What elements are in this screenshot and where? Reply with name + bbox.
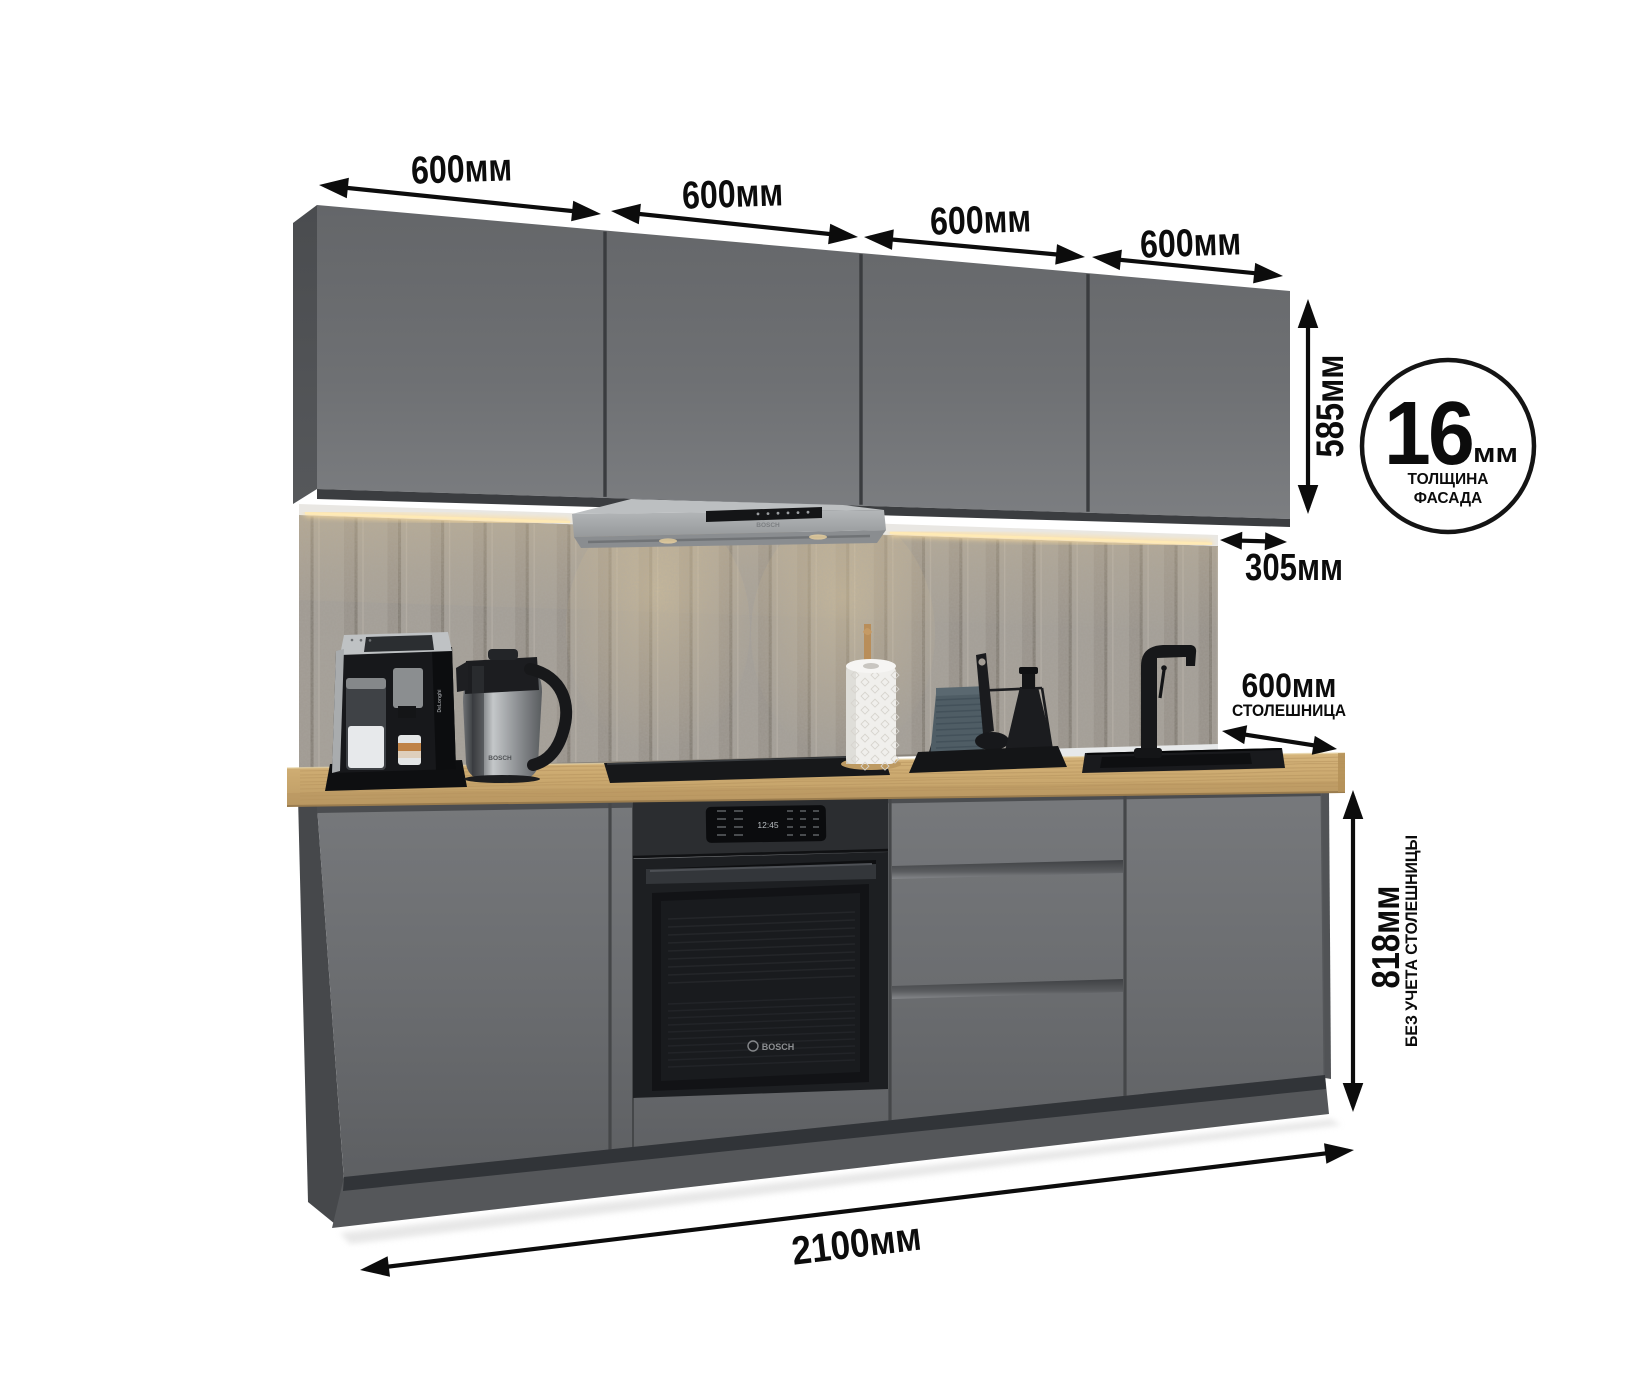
svg-text:16: 16 (1384, 384, 1472, 484)
svg-text:305мм: 305мм (1245, 547, 1343, 589)
svg-text:600мм: 600мм (681, 171, 783, 217)
svg-text:BOSCH: BOSCH (756, 522, 780, 529)
svg-text:12:45: 12:45 (757, 820, 779, 830)
svg-text:БЕЗ УЧЕТА СТОЛЕШНИЦЫ: БЕЗ УЧЕТА СТОЛЕШНИЦЫ (1402, 835, 1421, 1047)
svg-text:ТОЛЩИНА: ТОЛЩИНА (1408, 471, 1489, 488)
svg-text:600мм: 600мм (1139, 220, 1241, 266)
svg-text:BOSCH: BOSCH (762, 1042, 795, 1052)
svg-text:585мм: 585мм (1309, 355, 1352, 458)
svg-text:BOSCH: BOSCH (488, 755, 512, 762)
svg-text:600мм: 600мм (929, 197, 1031, 243)
svg-text:600мм: 600мм (410, 146, 512, 192)
svg-text:мм: мм (1473, 438, 1518, 468)
svg-text:DeLonghi: DeLonghi (437, 689, 443, 713)
svg-text:СТОЛЕШНИЦА: СТОЛЕШНИЦА (1232, 702, 1346, 720)
svg-text:ФАСАДА: ФАСАДА (1414, 490, 1482, 507)
svg-text:600мм: 600мм (1242, 667, 1337, 705)
